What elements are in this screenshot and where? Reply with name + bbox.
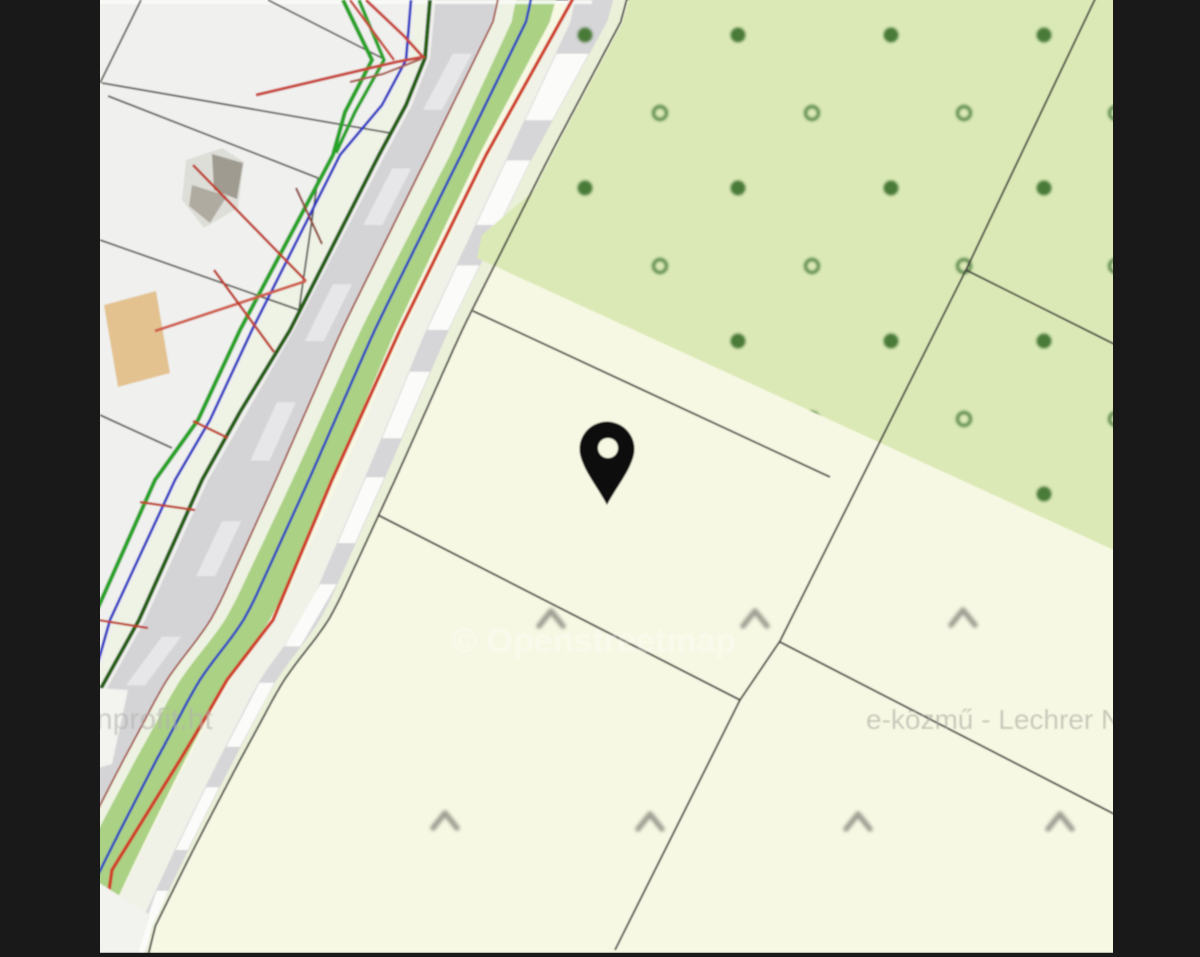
svg-text:© Openstreetmap: © Openstreetmap <box>452 622 736 660</box>
svg-text:e-közmű - Lechrer N: e-közmű - Lechrer N <box>866 704 1121 735</box>
svg-text:nprofit.ht: nprofit.ht <box>96 703 213 736</box>
